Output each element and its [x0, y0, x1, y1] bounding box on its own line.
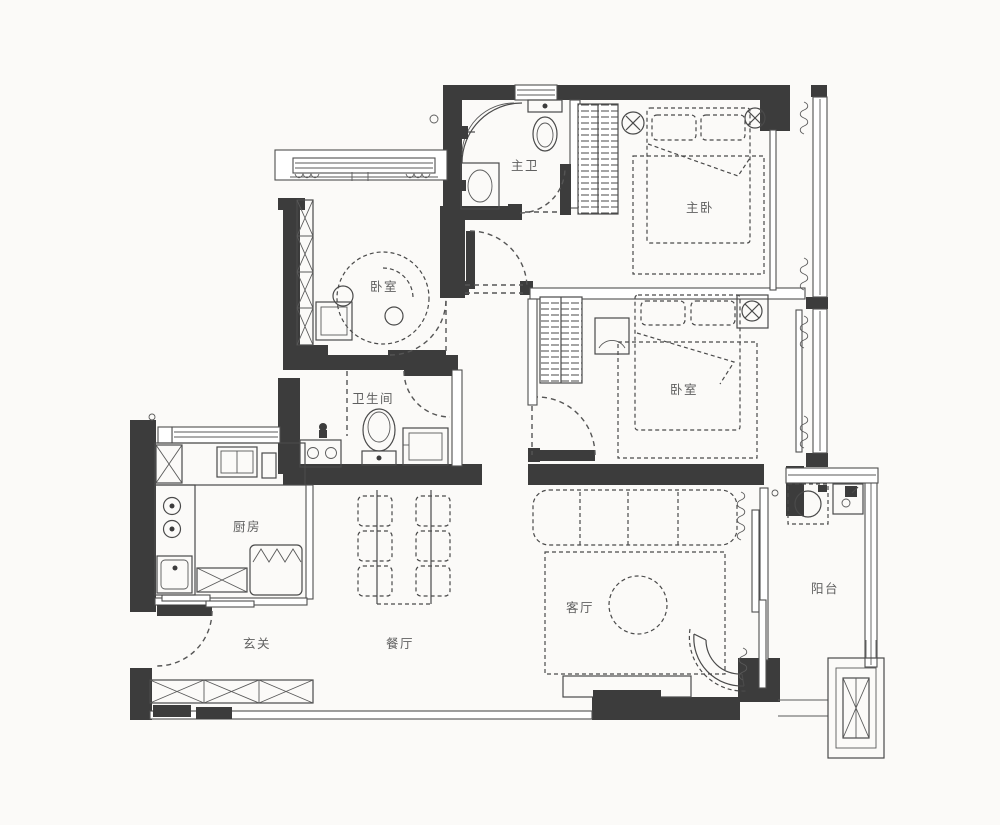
- wall-segment: [557, 85, 790, 100]
- room-label-master-bedroom: 主卧: [686, 200, 714, 215]
- chair-icon: [595, 318, 629, 354]
- room-label-balcony: 阳台: [811, 581, 839, 596]
- wardrobe-icon: [540, 297, 582, 383]
- door-stop: [430, 115, 438, 123]
- room-label-bedroom-right: 卧室: [670, 382, 698, 397]
- curtain-icon: [800, 258, 808, 290]
- floor-plan-page: 主卫 主卧 卧室 卫生间 卧室 厨房 玄关 餐厅 客厅 阳台: [0, 0, 1000, 825]
- bedroom-left-furniture: [297, 200, 429, 345]
- partition: [528, 299, 537, 405]
- door-bedroom-left: [388, 299, 446, 361]
- cooktop-icon: [164, 498, 181, 538]
- fridge-icon: [156, 445, 182, 483]
- dining-chair-icon: [416, 566, 450, 596]
- washing-machine-icon: [403, 428, 448, 465]
- counter-sink-icon: [217, 447, 276, 478]
- curtain-icon: [800, 102, 808, 134]
- wall-segment: [806, 453, 828, 467]
- dining-chair-icon: [358, 566, 392, 596]
- partition: [306, 485, 313, 599]
- door-entry: [157, 605, 212, 666]
- door-master-suite-vestibule: [465, 231, 527, 293]
- master-bedroom-furniture: [578, 104, 765, 274]
- balcony-sink-icon: [833, 484, 863, 514]
- shower-icon: [459, 103, 522, 163]
- ceiling-fan-icon: [737, 295, 768, 328]
- partition: [452, 370, 462, 466]
- wall-segment: [528, 464, 764, 485]
- dining-chair-icon: [416, 531, 450, 561]
- door-stop: [772, 490, 778, 496]
- wall-segment: [283, 345, 328, 370]
- wall-segment: [443, 206, 513, 220]
- window-bedroom-right: [813, 309, 827, 453]
- sofa-icon: [533, 490, 737, 545]
- dining-chair-icon: [358, 496, 392, 526]
- room-label-master-bath: 主卫: [511, 158, 539, 173]
- bed-icon: [618, 295, 757, 458]
- dining-furniture: [358, 490, 450, 604]
- door-stop: [149, 414, 155, 420]
- doormat-icon: [196, 707, 232, 719]
- bedroom-right-furniture: [540, 295, 768, 458]
- shoe-cabinet-icon: [150, 680, 313, 703]
- wall-segment: [811, 85, 827, 97]
- room-label-entry: 玄关: [243, 636, 271, 651]
- ac-platform: [828, 640, 884, 758]
- partition-walls: [150, 100, 828, 719]
- ceiling-fan-icon: [622, 112, 644, 134]
- room-label-bathroom: 卫生间: [352, 391, 394, 406]
- kitchen-sink-icon: [157, 556, 192, 593]
- wall-segment: [508, 204, 522, 220]
- wall-segment: [592, 697, 740, 720]
- dining-chair-icon: [416, 496, 450, 526]
- tv-icon: [593, 690, 661, 698]
- floor-plan: 主卫 主卧 卧室 卫生间 卧室 厨房 玄关 餐厅 客厅 阳台: [0, 0, 1000, 825]
- refrigerator-icon: [250, 545, 302, 595]
- room-label-bedroom-left: 卧室: [370, 279, 398, 294]
- tv-cabinet-icon: [563, 676, 691, 698]
- wall-segment: [278, 378, 300, 474]
- toilet-icon: [362, 409, 396, 465]
- wall-segment: [130, 594, 152, 608]
- doormat-icon: [153, 705, 191, 717]
- dining-table-icon: [377, 490, 431, 604]
- bed-icon: [633, 108, 764, 274]
- room-label-dining: 餐厅: [386, 636, 414, 651]
- living-furniture: [533, 490, 747, 698]
- bathroom-fixtures: [300, 409, 448, 467]
- wall-segment: [130, 668, 152, 720]
- partition: [770, 130, 776, 290]
- base-cabinet-icon: [197, 568, 247, 592]
- door-bedroom-right: [532, 397, 595, 461]
- window-master-bath: [515, 85, 557, 100]
- window-kitchen: [158, 427, 280, 443]
- room-label-living: 客厅: [566, 600, 594, 615]
- wall-segment: [806, 297, 828, 309]
- wardrobe-icon: [578, 104, 618, 214]
- vanity-sink-icon: [300, 423, 341, 467]
- dining-chair-icon: [358, 531, 392, 561]
- room-label-kitchen: 厨房: [233, 519, 261, 534]
- walls: [130, 85, 828, 720]
- curtain-icon: [737, 492, 745, 540]
- toilet-icon: [528, 100, 562, 151]
- ac-unit-icon: [843, 678, 869, 738]
- coffee-table-icon: [609, 576, 667, 634]
- desk-icon: [316, 302, 352, 340]
- wall-segment: [130, 420, 156, 612]
- sink-icon: [458, 163, 499, 209]
- window-master-bedroom: [813, 97, 827, 297]
